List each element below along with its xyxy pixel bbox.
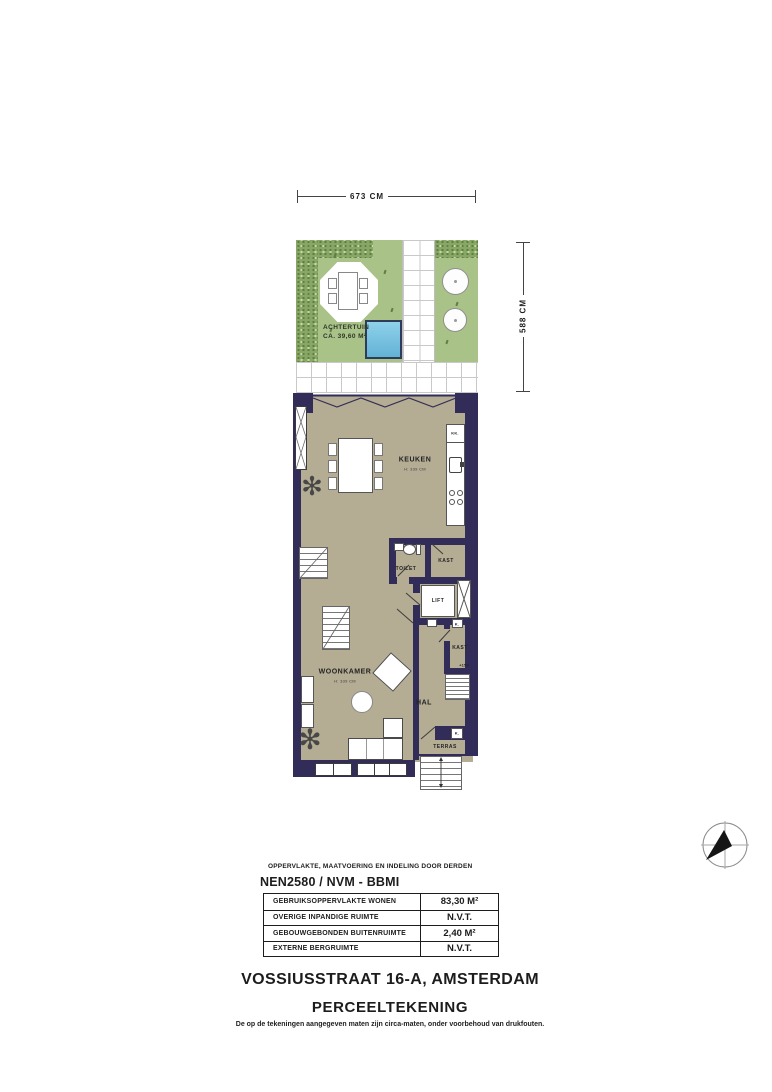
garden-chair [328,293,337,304]
room-label-woonkamer: WOONKAMER [319,669,372,676]
building: KK. ✻ ✻ [293,393,478,777]
garden-chair [359,293,368,304]
garden-chair [359,278,368,289]
page-subtitle: PERCEELTEKENING [96,999,684,1016]
hedge-top-left [318,240,373,258]
garden-path [402,240,435,362]
area-standard: NEN2580 / NVM - BBMI [260,875,399,889]
area-note: OPPERVLAKTE, MAATVOERING EN INDELING DOO… [268,863,472,870]
hedge-top-right [435,240,478,258]
room-label-toilet: TOILET [396,566,417,572]
room-label-hal: HAL [416,700,432,707]
garden-pond [365,320,402,359]
room-label-keuken: KEUKEN [399,457,432,464]
garden-chair [328,278,337,289]
room-label-lift: LIFT [432,598,445,604]
room-height-woonkamer: H: 339 CM [334,679,356,684]
page-title: VOSSIUSSTRAAT 16-A, AMSTERDAM [96,971,684,989]
tree-center [454,280,457,283]
dimension-top-label: 673 CM [346,191,388,202]
area-row-value: N.V.T. [420,910,498,926]
disclaimer: De op de tekeningen aangegeven maten zij… [96,1021,684,1028]
room-height-keuken: H: 339 CM [404,467,426,472]
room-label-kast2: KAST [452,645,468,651]
area-row-value: 83,30 M² [420,894,498,910]
room-label-kast1: KAST [438,558,454,564]
plan-line-details [293,393,478,793]
compass-north-icon [697,817,753,873]
stair-level-label: +150 [459,663,469,668]
area-row-label: GEBRUIKSOPPERVLAKTE WONEN [264,894,420,910]
tree-center [454,319,457,322]
area-row-value: 2,40 M² [420,925,498,941]
garden: ACHTERTUIN CA. 39,60 M² [296,240,478,362]
dimension-right-label: 588 CM [518,295,529,337]
area-row-label: EXTERNE BERGRUIMTE [264,941,420,957]
garden-table [338,272,358,310]
hedge-left [296,240,318,362]
room-label-terras: TERRAS [433,744,457,750]
area-row-value: N.V.T. [420,941,498,957]
area-row-label: OVERIGE INPANDIGE RUIMTE [264,910,420,926]
meter-label: K. [455,731,459,736]
area-table: GEBRUIKSOPPERVLAKTE WONEN 83,30 M² OVERI… [263,893,499,957]
garden-terrace-tiles [296,362,478,393]
meter-label: K. [455,622,459,627]
floorplan-page: 673 CM 588 CM A [0,0,772,1092]
garden-label: ACHTERTUIN CA. 39,60 M² [323,323,369,341]
area-row-label: GEBOUWGEBONDEN BUITENRUIMTE [264,925,420,941]
